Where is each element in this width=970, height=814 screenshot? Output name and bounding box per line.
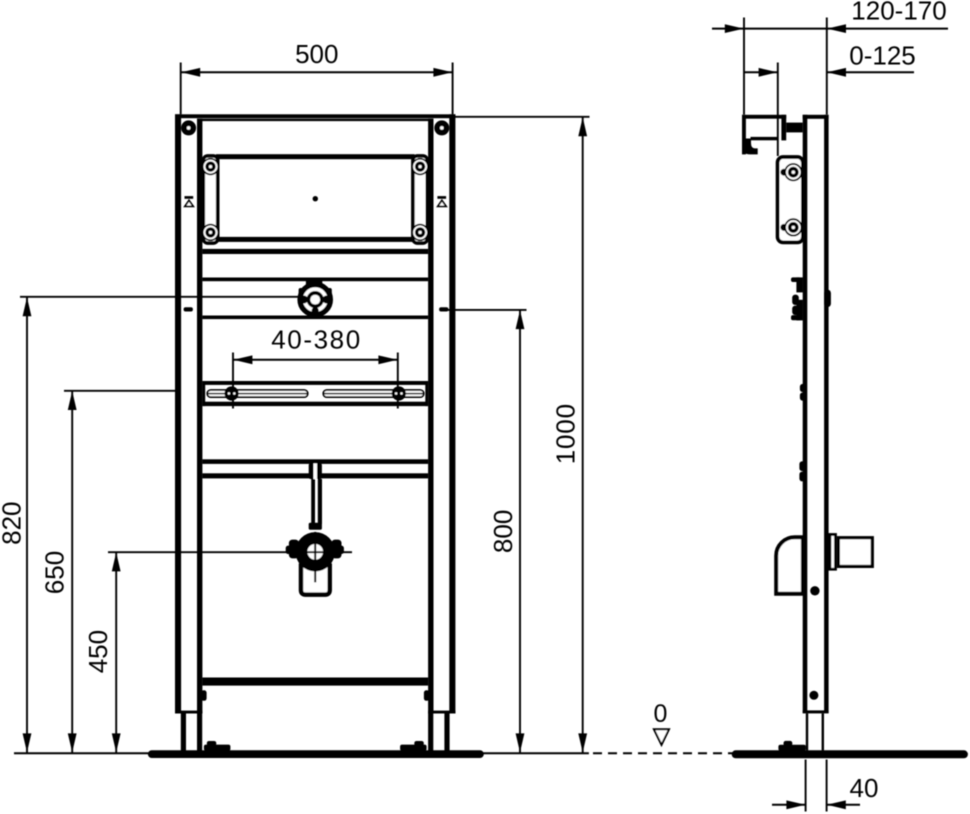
svg-text:800: 800 <box>488 510 518 553</box>
svg-text:120-170: 120-170 <box>851 0 946 26</box>
svg-text:650: 650 <box>40 551 70 594</box>
svg-text:0: 0 <box>654 700 668 728</box>
svg-text:500: 500 <box>295 39 338 69</box>
svg-text:40: 40 <box>850 773 879 803</box>
svg-text:40-380: 40-380 <box>271 325 362 355</box>
svg-text:1000: 1000 <box>551 403 581 464</box>
svg-text:0-125: 0-125 <box>849 41 916 71</box>
svg-text:450: 450 <box>83 630 113 673</box>
svg-text:820: 820 <box>0 502 26 545</box>
